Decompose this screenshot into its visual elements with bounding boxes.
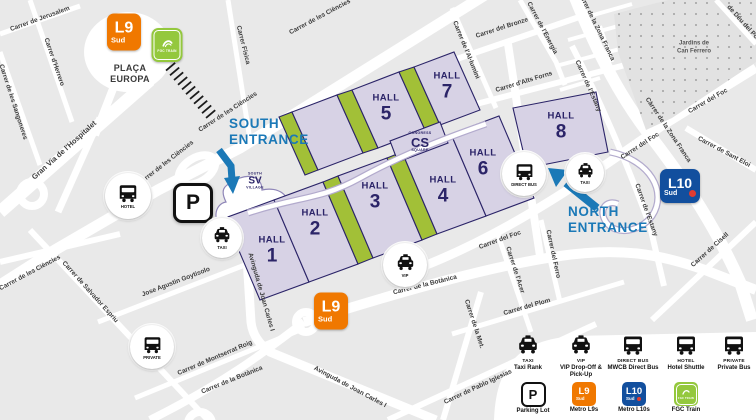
parking-letter: P (529, 387, 538, 402)
hotel-shuttle-marker[interactable]: HOTEL (105, 173, 151, 219)
legend-title: DIRECT BUS (607, 359, 659, 364)
car-icon (569, 334, 593, 358)
metro-l10-name: L10 (664, 176, 696, 190)
metro-l9-sub: Sud (576, 396, 594, 401)
legend-item-hotel: HOTEL Hotel Shuttle (660, 334, 712, 372)
legend-desc: MWCB Direct Bus (607, 365, 659, 372)
south-village-bottom: VILLAGE (246, 186, 264, 190)
congress-square-main: CS (409, 136, 432, 149)
legend-item-parking: P Parking Lot (507, 382, 559, 415)
railway-hatch (170, 66, 214, 118)
legend-item-direct-bus: DIRECT BUS MWCB Direct Bus (607, 334, 659, 372)
metro-l9-name: L9 (111, 20, 137, 36)
fgc-logo-icon (160, 37, 174, 49)
legend-item-private: PRIVATE Private Bus (708, 334, 756, 372)
south-entrance-line2: ENTRANCE (229, 132, 309, 148)
taxi-north-marker[interactable]: TAXI (566, 154, 604, 192)
l10-dot-icon (689, 190, 696, 197)
taxi-marker-label: TAXI (217, 245, 226, 250)
bus-icon (514, 162, 535, 183)
road (98, 256, 268, 322)
road (58, 118, 100, 212)
road (520, 0, 565, 85)
legend-item-metro-l10: L10 Sud Metro L10s (608, 382, 660, 414)
legend-item-vip: VIP VIP Drop-Off & Pick-Up (555, 334, 607, 379)
metro-l9-sub: Sud (111, 36, 137, 44)
road (448, 14, 588, 62)
north-entrance-label: NORTH ENTRANCE (568, 204, 648, 236)
l10-dot-icon (637, 397, 642, 402)
metro-l10-icon: L10 Sud (622, 382, 646, 406)
legend-desc: Private Bus (708, 365, 756, 372)
fgc-badge[interactable]: FGC TRAIN (152, 28, 183, 62)
legend-title: TAXI (502, 359, 554, 364)
taxi-icon (212, 226, 232, 246)
legend-item-taxi: TAXI Taxi Rank (502, 334, 554, 372)
bus-icon (621, 334, 645, 358)
south-village-label: SOUTH SV VILLAGE (246, 172, 264, 189)
hotel-marker-label: HOTEL (121, 204, 135, 209)
legend-desc: VIP Drop-Off & Pick-Up (555, 365, 607, 379)
legend-title: HOTEL (660, 359, 712, 364)
congress-square-bottom: SQUARE (409, 149, 432, 153)
taxi-icon (576, 162, 595, 181)
legend-desc: Metro L9s (558, 407, 610, 414)
north-entrance-line2: ENTRANCE (568, 220, 648, 236)
taxi-south-marker[interactable]: TAXI (202, 218, 242, 258)
parking-icon: P (521, 382, 546, 407)
fgc-badge-label: FGC TRAIN (678, 397, 694, 400)
metro-l9-south-badge[interactable]: L9 Sud (314, 293, 348, 330)
congress-square-label: CONGRESS CS SQUARE (409, 132, 432, 152)
metro-l10-sub: Sud (626, 396, 635, 401)
parking-marker[interactable]: P (173, 183, 213, 223)
metro-l10-sub: Sud (664, 190, 677, 197)
metro-l10-name: L10 (624, 387, 644, 397)
legend-desc: FGC Train (660, 407, 712, 414)
vip-marker-label: VIP (402, 273, 409, 278)
fgc-icon: FGC TRAIN (674, 382, 698, 406)
metro-l9-badge[interactable]: L9 Sud (107, 14, 141, 51)
legend-desc: Parking Lot (507, 408, 559, 415)
metro-l9-name: L9 (318, 299, 344, 315)
private-marker-label: PRIVATE (143, 355, 161, 360)
legend-item-metro-l9: L9 Sud Metro L9s (558, 382, 610, 414)
fgc-logo-icon (681, 388, 691, 396)
parking-marker-label: P (186, 191, 200, 215)
south-entrance-line1: SOUTH (229, 116, 309, 132)
bus-icon (117, 183, 139, 205)
venue-map: Carrer de Jerusalem Carrer d'Herrero Car… (0, 0, 756, 420)
south-entrance-label: SOUTH ENTRANCE (229, 116, 309, 148)
road (150, 322, 304, 420)
bus-icon (722, 334, 746, 358)
metro-l10-badge[interactable]: L10 Sud (660, 169, 700, 203)
bus-icon (674, 334, 698, 358)
legend-desc: Taxi Rank (502, 365, 554, 372)
fgc-badge-label: FGC TRAIN (157, 49, 176, 53)
metro-l9-sub: Sud (318, 315, 344, 323)
road (30, 230, 208, 420)
taxi-marker-label: TAXI (580, 180, 589, 185)
legend-title: PRIVATE (708, 359, 756, 364)
legend-title: VIP (555, 359, 607, 364)
direct-bus-marker[interactable]: DIRECT BUS (502, 152, 546, 196)
legend-desc: Hotel Shuttle (660, 365, 712, 372)
private-bus-marker[interactable]: PRIVATE (130, 325, 174, 369)
legend-desc: Metro L10s (608, 407, 660, 414)
metro-l9-icon: L9 Sud (572, 382, 596, 406)
fgc-badge-inner: FGC TRAIN (154, 30, 181, 60)
legend-item-fgc: FGC TRAIN FGC Train (660, 382, 712, 414)
north-entrance-line1: NORTH (568, 204, 648, 220)
bus-icon (142, 335, 163, 356)
taxi-icon (516, 334, 540, 358)
direct-bus-marker-label: DIRECT BUS (511, 182, 537, 187)
road (443, 292, 481, 420)
metro-l9-name: L9 (574, 387, 594, 397)
car-icon (395, 253, 416, 274)
road (0, 52, 40, 165)
road (686, 128, 756, 170)
roundabout (188, 412, 212, 420)
roundabout (20, 182, 44, 206)
vip-marker[interactable]: VIP (383, 243, 427, 287)
